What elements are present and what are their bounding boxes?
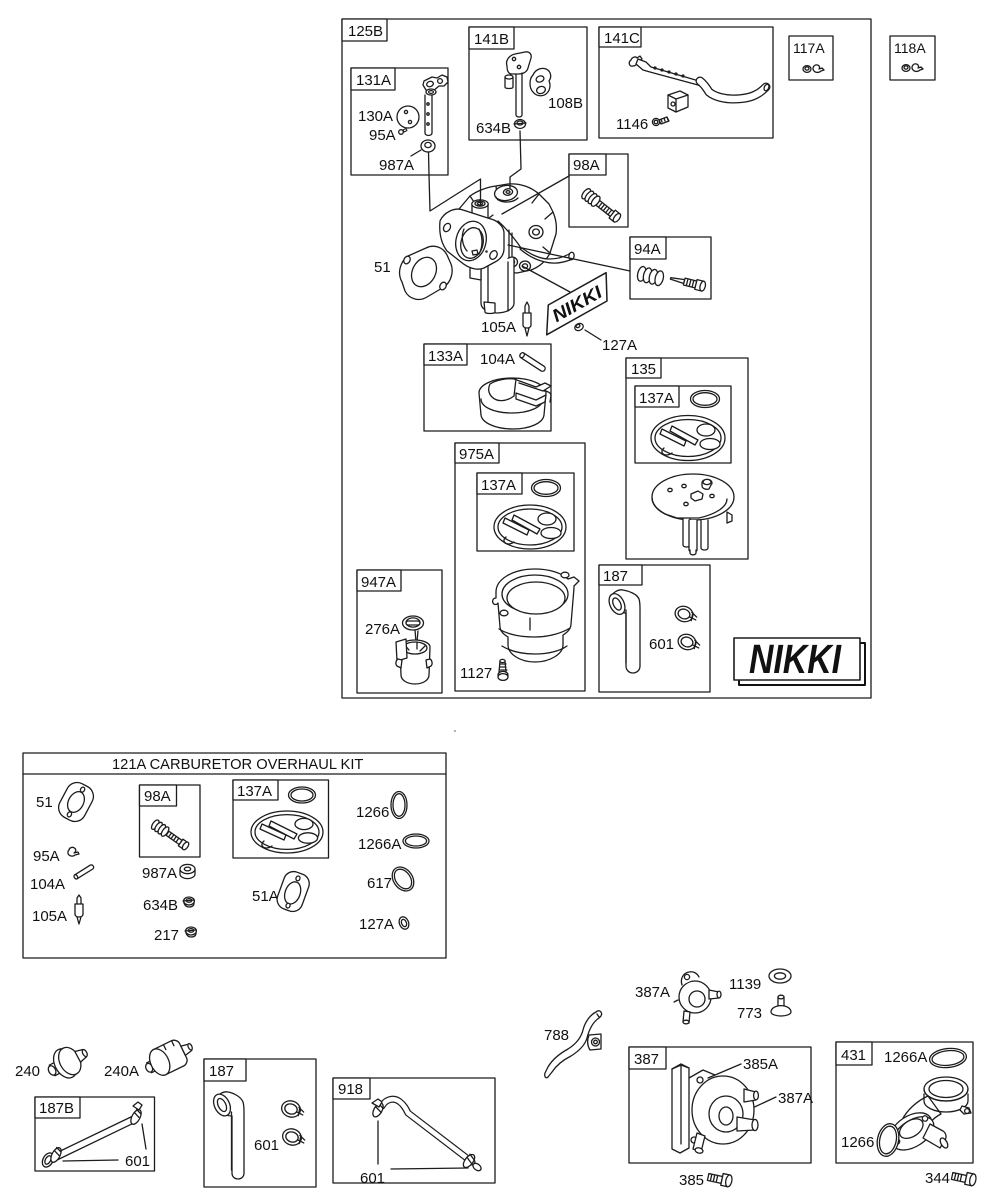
svg-text:788: 788 <box>544 1027 569 1044</box>
svg-text:918: 918 <box>338 1081 363 1098</box>
svg-text:975A: 975A <box>459 446 494 463</box>
svg-text:141B: 141B <box>474 31 509 48</box>
svg-text:601: 601 <box>649 636 674 653</box>
svg-text:387: 387 <box>634 1051 659 1068</box>
svg-text:987A: 987A <box>379 157 414 174</box>
svg-text:1146: 1146 <box>616 116 648 133</box>
svg-text:601: 601 <box>360 1170 385 1187</box>
svg-text:1266: 1266 <box>841 1134 874 1151</box>
svg-text:634B: 634B <box>476 120 511 137</box>
svg-text:387A: 387A <box>778 1090 813 1107</box>
svg-text:1266: 1266 <box>356 804 389 821</box>
svg-text:240: 240 <box>15 1063 40 1080</box>
svg-text:135: 135 <box>631 361 656 378</box>
svg-text:117A: 117A <box>793 40 825 56</box>
svg-text:1127: 1127 <box>460 665 492 682</box>
svg-text:118A: 118A <box>894 40 926 56</box>
svg-text:104A: 104A <box>480 351 515 368</box>
svg-text:127A: 127A <box>602 337 637 354</box>
svg-text:108B: 108B <box>548 95 583 112</box>
svg-text:385A: 385A <box>743 1056 778 1073</box>
svg-text:121A CARBURETOR OVERHAUL KIT: 121A CARBURETOR OVERHAUL KIT <box>112 757 363 773</box>
svg-text:51A: 51A <box>252 888 279 905</box>
svg-text:51: 51 <box>36 794 53 811</box>
svg-text:94A: 94A <box>634 241 661 258</box>
svg-text:137A: 137A <box>639 390 674 407</box>
svg-text:617: 617 <box>367 875 392 892</box>
svg-text:105A: 105A <box>481 319 516 336</box>
svg-text:130A: 130A <box>358 108 393 125</box>
svg-text:1139: 1139 <box>729 976 761 993</box>
svg-text:387A: 387A <box>635 984 670 1001</box>
svg-text:601: 601 <box>125 1153 150 1170</box>
svg-text:773: 773 <box>737 1005 762 1022</box>
svg-text:NIKKI: NIKKI <box>749 636 842 682</box>
svg-text:217: 217 <box>154 927 179 944</box>
svg-text:133A: 133A <box>428 348 463 365</box>
svg-text:947A: 947A <box>361 574 396 591</box>
svg-text:187: 187 <box>603 568 628 585</box>
svg-text:95A: 95A <box>369 127 396 144</box>
svg-text:137A: 137A <box>481 477 516 494</box>
svg-text:105A: 105A <box>32 908 67 925</box>
svg-text:601: 601 <box>254 1137 279 1154</box>
svg-text:634B: 634B <box>143 897 178 914</box>
svg-text:137A: 137A <box>237 783 272 800</box>
svg-text:1266A: 1266A <box>358 836 401 853</box>
svg-text:51: 51 <box>374 259 391 276</box>
svg-text:125B: 125B <box>348 23 383 40</box>
svg-text:141C: 141C <box>604 30 640 47</box>
svg-text:385: 385 <box>679 1172 704 1189</box>
svg-text:104A: 104A <box>30 876 65 893</box>
svg-text:276A: 276A <box>365 621 400 638</box>
svg-text:98A: 98A <box>144 788 171 805</box>
svg-text:131A: 131A <box>356 72 391 89</box>
svg-text:240A: 240A <box>104 1063 139 1080</box>
svg-text:187B: 187B <box>39 1100 74 1117</box>
svg-text:127A: 127A <box>359 916 394 933</box>
svg-text:431: 431 <box>841 1047 866 1064</box>
svg-text:987A: 987A <box>142 865 177 882</box>
svg-text:344: 344 <box>925 1170 950 1187</box>
svg-text:95A: 95A <box>33 848 60 865</box>
svg-text:98A: 98A <box>573 157 600 174</box>
svg-text:1266A: 1266A <box>884 1049 927 1066</box>
svg-text:187: 187 <box>209 1063 234 1080</box>
